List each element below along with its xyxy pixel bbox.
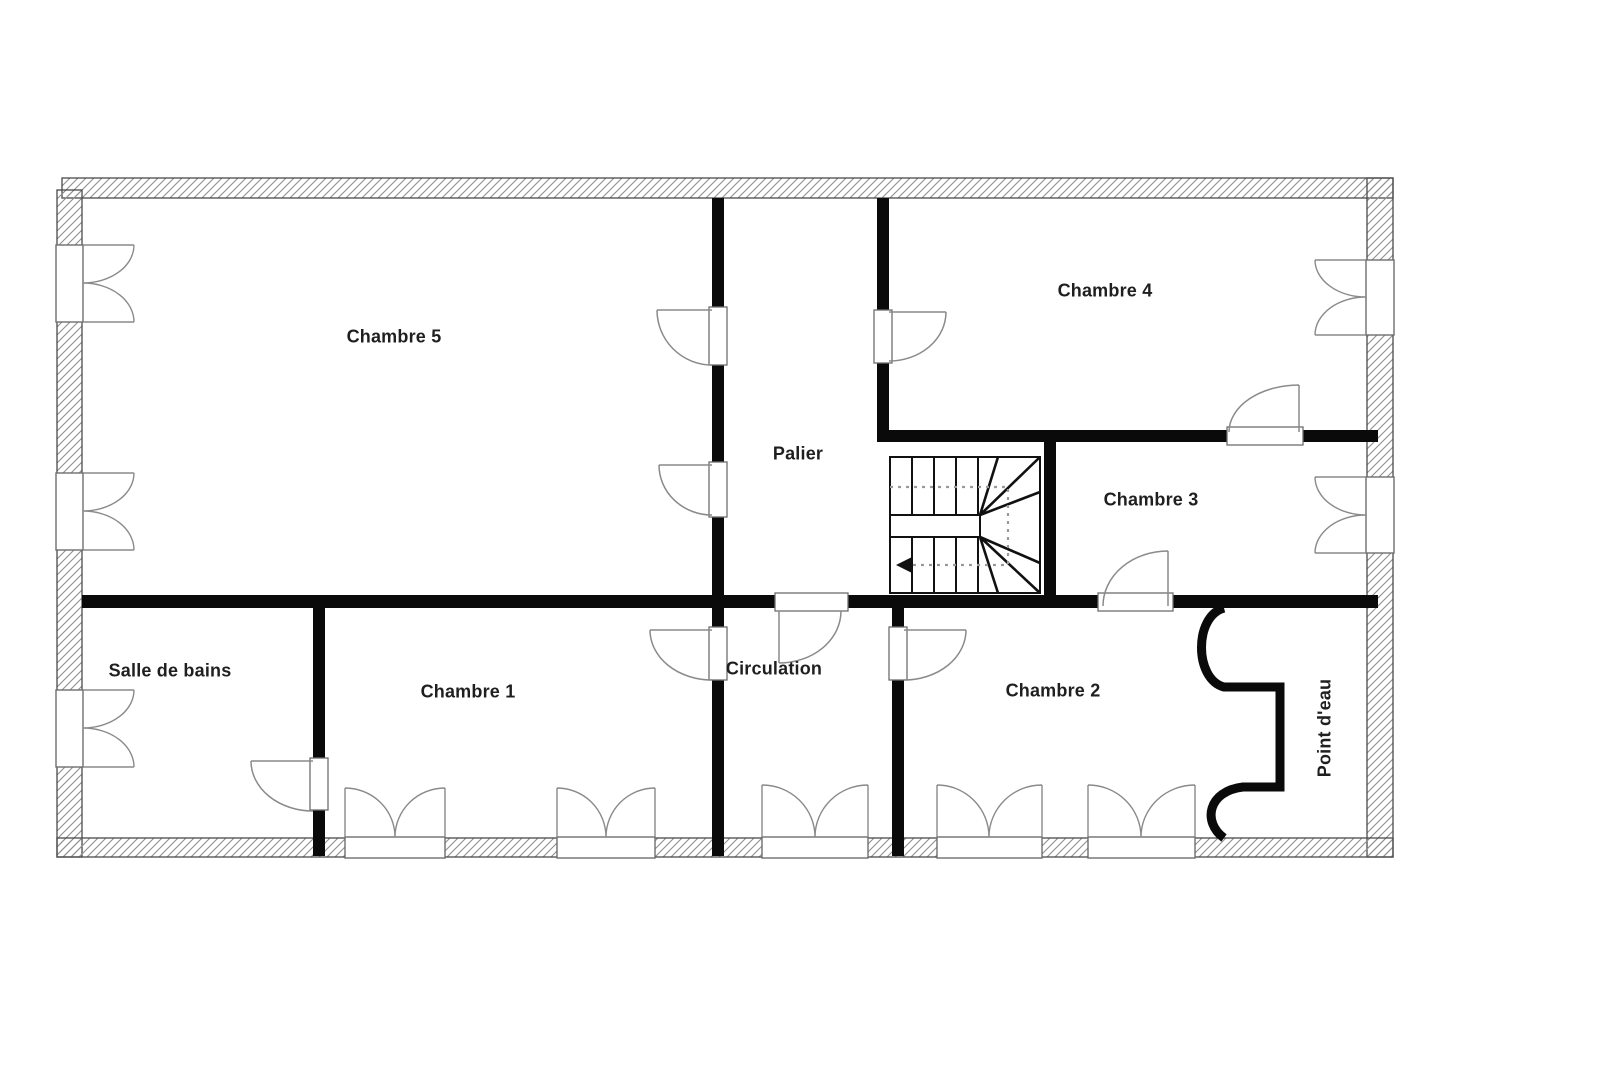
wall-main-horizontal-1 xyxy=(82,595,775,608)
window-chambre2-right xyxy=(1088,837,1195,858)
wall-circulation-chambre2-2 xyxy=(892,680,904,856)
wall-sdb-chambre1-2 xyxy=(313,810,325,856)
interior-walls xyxy=(82,198,1378,856)
wall-palier-chambre4-1 xyxy=(877,198,889,310)
wall-sdb-chambre1-1 xyxy=(313,608,325,758)
casement-chambre2-right xyxy=(1088,785,1195,837)
wall-chambre4-south-2 xyxy=(1303,430,1378,442)
threshold-sdb-door xyxy=(310,758,328,810)
window-chambre1-right xyxy=(557,837,655,858)
casement-chambre1-left xyxy=(345,788,445,837)
threshold-chambre4-door-west xyxy=(874,310,892,363)
wall-stairs-chambre3 xyxy=(1044,430,1056,608)
casement-chambre4 xyxy=(1315,260,1366,335)
wall-chambre1-circulation-1 xyxy=(712,608,724,627)
room-label-chambre-4: Chambre 4 xyxy=(1058,281,1153,302)
window-chambre2-left xyxy=(937,837,1042,858)
floor-plan-drawing xyxy=(0,0,1611,1080)
threshold-chambre3-door xyxy=(1098,593,1173,611)
room-label-point-d-eau: Point d'eau xyxy=(1315,679,1336,777)
window-chambre5-upper xyxy=(56,245,83,322)
wall-main-horizontal-2 xyxy=(848,595,1098,608)
window-salle-de-bains xyxy=(56,690,83,767)
wall-chambre1-circulation-2 xyxy=(712,680,724,856)
door-symbols xyxy=(251,310,1299,811)
door-palier-circulation xyxy=(779,611,841,663)
room-label-circulation: Circulation xyxy=(726,659,822,680)
threshold-chambre5-door1 xyxy=(709,307,727,365)
wall-point-deau-curved xyxy=(1202,608,1281,838)
threshold-chambre5-door2 xyxy=(709,462,727,517)
casement-chambre3 xyxy=(1315,477,1366,553)
door-chambre5-lower xyxy=(659,465,712,515)
floor-plan-page: Chambre 5 Chambre 4 Palier Chambre 3 Sal… xyxy=(0,0,1611,1080)
casement-chambre5-upper xyxy=(83,245,134,322)
door-chambre1 xyxy=(650,630,712,680)
threshold-palier-circulation-door xyxy=(775,593,848,611)
staircase-walk-line xyxy=(890,487,1008,565)
threshold-chambre2-door xyxy=(889,627,907,680)
window-circulation xyxy=(762,837,868,858)
room-label-chambre-5: Chambre 5 xyxy=(347,327,442,348)
door-chambre4-west xyxy=(889,312,946,361)
staircase-landing-lines xyxy=(890,515,980,537)
casement-salle-de-bains xyxy=(83,690,134,767)
threshold-chambre4-door-south xyxy=(1227,427,1303,445)
threshold-chambre1-door xyxy=(709,627,727,680)
window-chambre3 xyxy=(1366,477,1394,553)
door-thresholds xyxy=(310,307,1303,810)
wall-main-horizontal-3 xyxy=(1173,595,1378,608)
door-chambre5-upper xyxy=(657,310,712,365)
staircase-winders-lower xyxy=(980,537,1040,593)
staircase xyxy=(890,457,1040,593)
wall-circulation-chambre2-1 xyxy=(892,608,904,627)
staircase-direction-arrow-icon xyxy=(896,557,912,573)
casement-chambre1-right xyxy=(557,788,655,837)
staircase-treads-upper xyxy=(912,457,978,515)
wall-chambre5-palier-1 xyxy=(712,198,724,307)
casement-chambre5-lower xyxy=(83,473,134,550)
window-chambre5-lower xyxy=(56,473,83,550)
exterior-wall-top xyxy=(62,178,1393,198)
casement-circulation xyxy=(762,785,868,837)
door-chambre4-south xyxy=(1229,385,1299,432)
room-label-chambre-1: Chambre 1 xyxy=(421,682,516,703)
window-chambre4 xyxy=(1366,260,1394,335)
wall-chambre5-palier-2 xyxy=(712,365,724,462)
wall-chambre5-palier-3 xyxy=(712,517,724,595)
room-label-chambre-2: Chambre 2 xyxy=(1006,681,1101,702)
room-label-salle-de-bains: Salle de bains xyxy=(109,661,232,682)
room-label-chambre-3: Chambre 3 xyxy=(1104,490,1199,511)
door-salle-de-bains xyxy=(251,761,313,811)
room-label-palier: Palier xyxy=(773,444,823,465)
window-chambre1-left xyxy=(345,837,445,858)
casement-chambre2-left xyxy=(937,785,1042,837)
door-chambre2 xyxy=(904,630,966,680)
